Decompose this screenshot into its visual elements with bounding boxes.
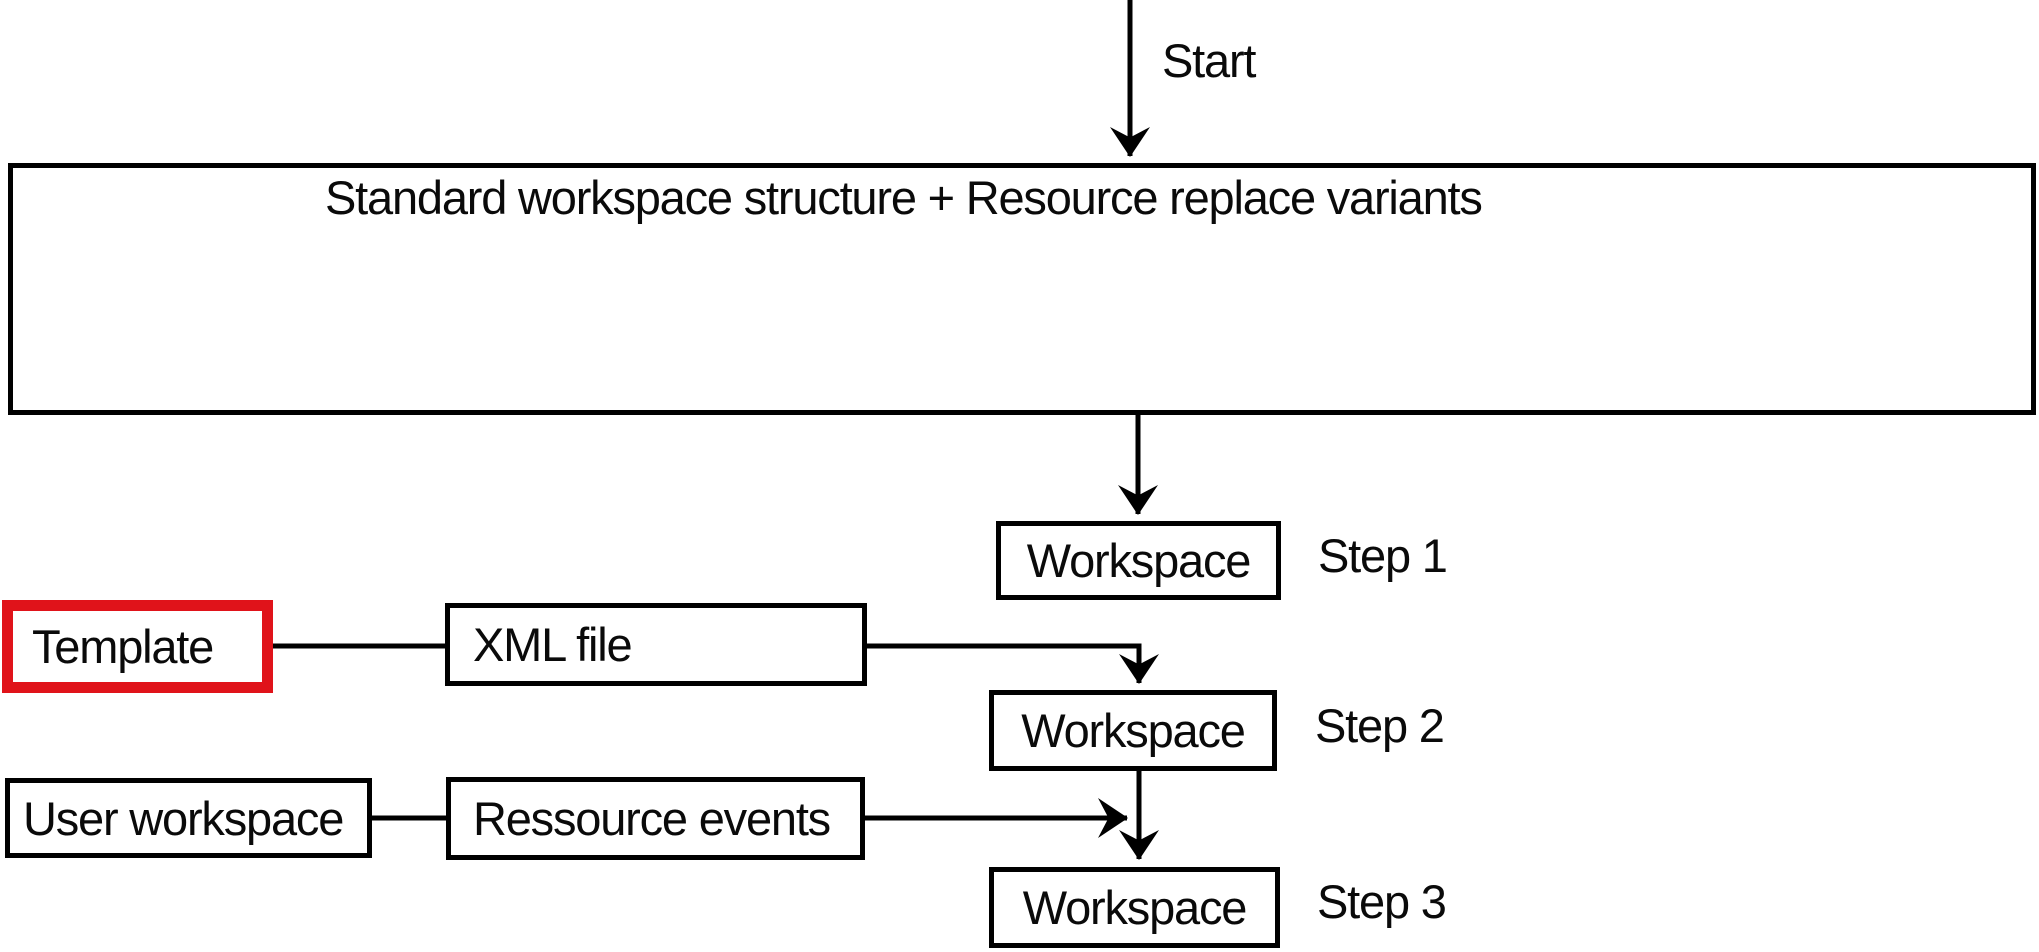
workspace-box-label: Workspace <box>1021 703 1244 758</box>
step1-label: Step 1 <box>1318 532 1447 579</box>
workspace-box-step2: Workspace <box>989 690 1277 771</box>
flowchart-canvas: Start Standard workspace structure + Res… <box>0 0 2039 952</box>
start-label: Start <box>1162 37 1255 84</box>
user-workspace-box: User workspace <box>5 778 372 858</box>
main-box: Standard workspace structure + Resource … <box>8 163 2036 415</box>
workspace-box-label: Workspace <box>1027 533 1250 588</box>
workspace-box-step1: Workspace <box>996 521 1281 600</box>
ressource-events-box: Ressource events <box>446 777 865 860</box>
template-box-highlighted: Template <box>2 600 273 693</box>
ressource-events-box-label: Ressource events <box>473 791 830 846</box>
xml-file-box: XML file <box>445 603 867 686</box>
step3-label: Step 3 <box>1317 878 1446 925</box>
user-workspace-box-label: User workspace <box>23 791 343 846</box>
workspace-box-step3: Workspace <box>989 867 1280 948</box>
workspace-box-label: Workspace <box>1023 880 1246 935</box>
step2-label: Step 2 <box>1315 702 1444 749</box>
template-box-label: Template <box>32 619 213 674</box>
xml-file-box-label: XML file <box>473 617 631 672</box>
main-box-label: Standard workspace structure + Resource … <box>325 174 1482 221</box>
arrow-xml-to-step2 <box>867 646 1139 683</box>
